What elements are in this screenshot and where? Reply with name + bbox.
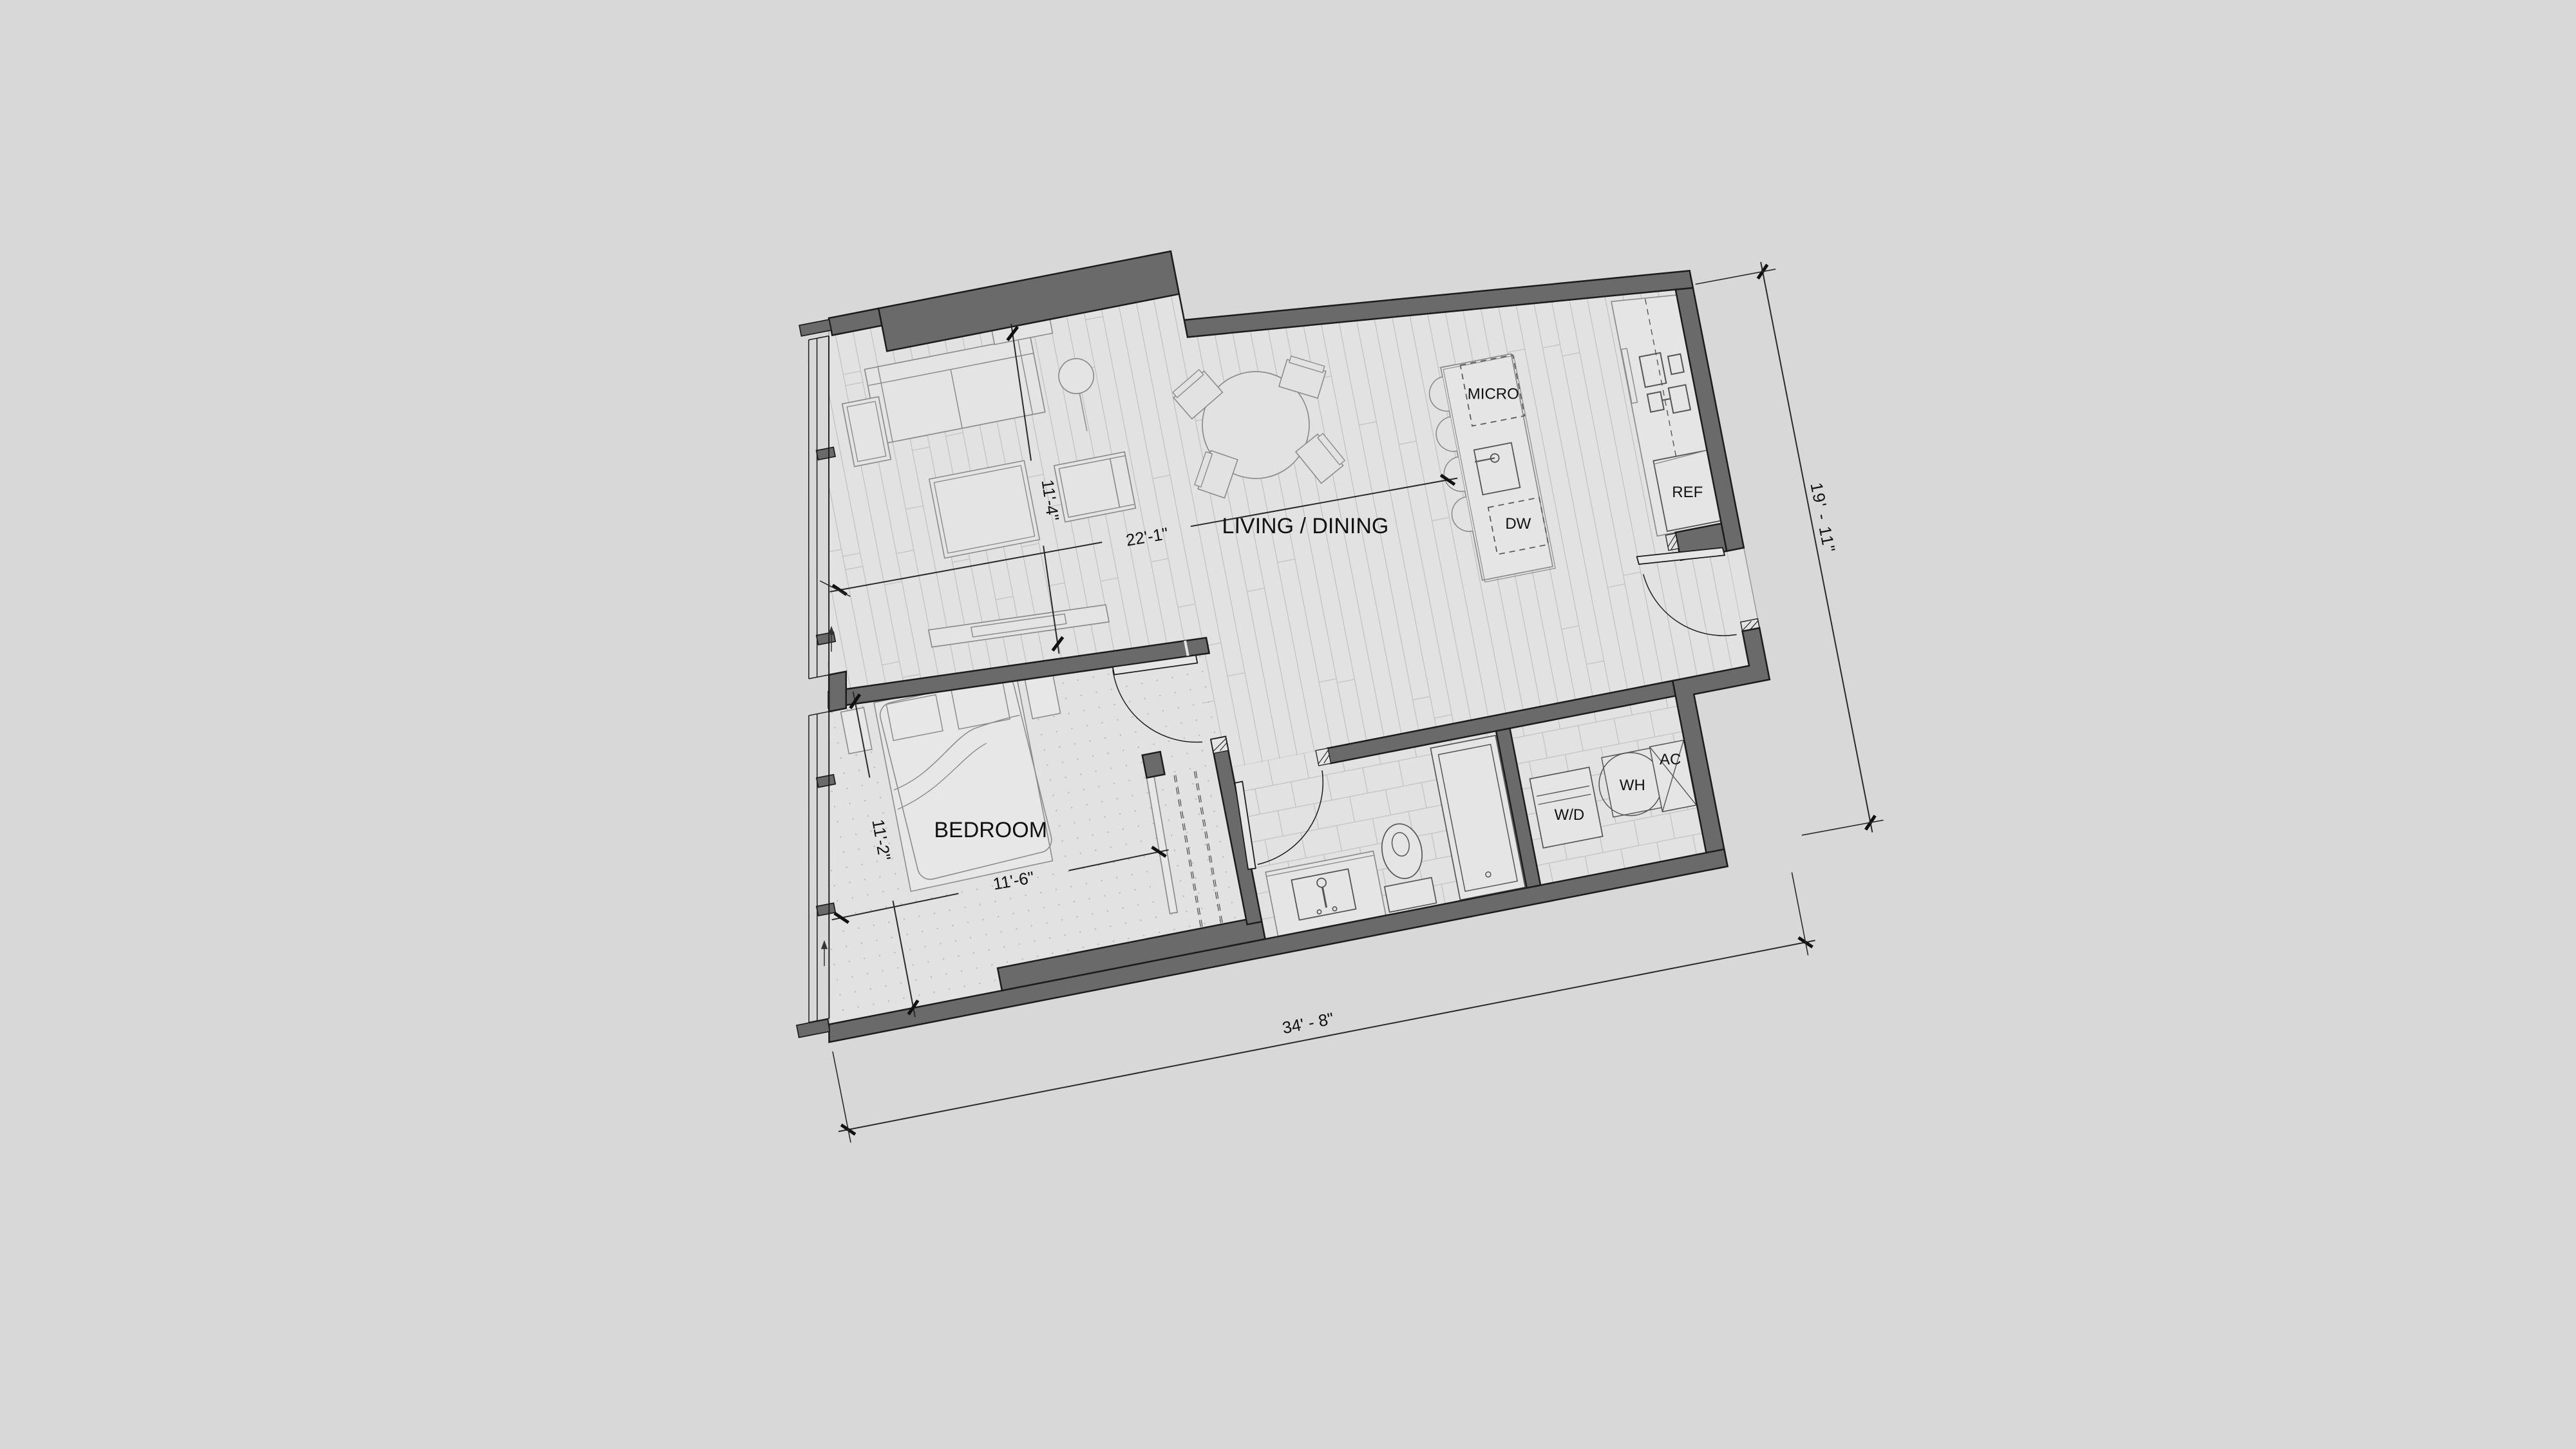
svg-text:BEDROOM: BEDROOM: [934, 818, 1047, 842]
svg-text:W/D: W/D: [1555, 806, 1585, 824]
svg-text:MICRO: MICRO: [1468, 385, 1519, 402]
svg-text:AC: AC: [1660, 751, 1681, 768]
svg-text:WH: WH: [1620, 777, 1645, 794]
svg-text:DW: DW: [1505, 515, 1531, 533]
svg-text:LIVING / DINING: LIVING / DINING: [1222, 514, 1389, 538]
svg-text:REF: REF: [1672, 484, 1703, 501]
